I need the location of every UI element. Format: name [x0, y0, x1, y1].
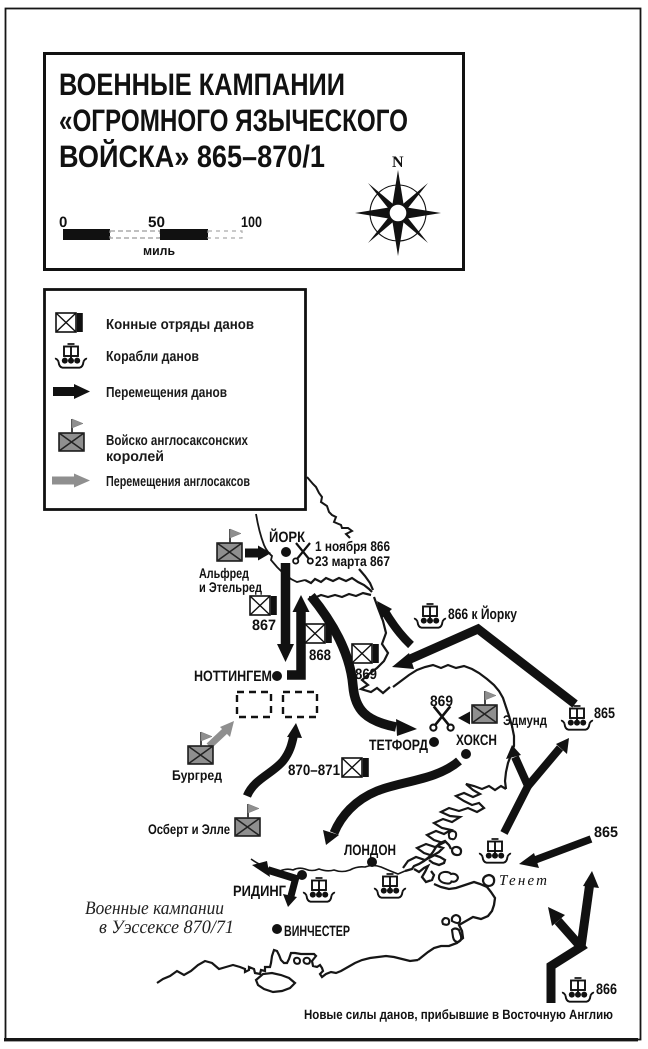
svg-text:865: 865	[594, 705, 615, 722]
svg-text:866 к Йорку: 866 к Йорку	[448, 605, 518, 623]
svg-text:Перемещения англосаксов: Перемещения англосаксов	[106, 474, 250, 490]
svg-text:Корабли данов: Корабли данов	[106, 349, 199, 365]
svg-text:100: 100	[241, 214, 262, 231]
svg-text:ЛОНДОН: ЛОНДОН	[344, 842, 396, 859]
svg-text:Конные отряды данов: Конные отряды данов	[106, 317, 254, 333]
svg-text:в Уэссексе 870/71: в Уэссексе 870/71	[99, 917, 234, 938]
svg-text:Тенет: Тенет	[499, 873, 547, 889]
svg-text:868: 868	[309, 647, 331, 664]
svg-text:королей: королей	[106, 449, 164, 465]
svg-text:Военные кампании: Военные кампании	[85, 898, 224, 919]
svg-text:N: N	[392, 154, 404, 171]
svg-text:Бургред: Бургред	[172, 767, 222, 783]
svg-text:НОТТИНГЕМ: НОТТИНГЕМ	[194, 668, 272, 685]
svg-text:ВОЕННЫЕ КАМПАНИИ: ВОЕННЫЕ КАМПАНИИ	[59, 67, 345, 102]
svg-text:и Этельред: и Этельред	[199, 579, 262, 595]
svg-text:РИДИНГ: РИДИНГ	[233, 883, 286, 900]
svg-text:ВИНЧЕСТЕР: ВИНЧЕСТЕР	[284, 923, 350, 940]
svg-text:Эдмунд: Эдмунд	[503, 712, 547, 728]
svg-text:Новые силы данов, прибывшие в: Новые силы данов, прибывшие в Восточную …	[304, 1007, 613, 1022]
svg-text:Войско англосаксонских: Войско англосаксонских	[106, 433, 248, 449]
svg-text:ЙОРК: ЙОРК	[269, 528, 306, 546]
svg-text:869: 869	[355, 666, 377, 683]
svg-text:Перемещения данов: Перемещения данов	[106, 385, 227, 401]
svg-text:23 марта 867: 23 марта 867	[315, 553, 390, 569]
svg-text:869: 869	[430, 693, 453, 710]
svg-text:867: 867	[252, 617, 276, 634]
svg-text:ТЕТФОРД: ТЕТФОРД	[369, 737, 428, 754]
svg-text:870–871: 870–871	[288, 762, 340, 779]
svg-text:Осберт и Элле: Осберт и Элле	[148, 821, 230, 837]
svg-text:миль: миль	[143, 243, 175, 258]
svg-text:866: 866	[596, 981, 617, 998]
svg-text:50: 50	[148, 214, 165, 231]
svg-text:865: 865	[594, 824, 618, 841]
svg-text:1 ноября 866: 1 ноября 866	[315, 538, 390, 554]
svg-text:0: 0	[59, 214, 67, 231]
svg-text:«ОГРОМНОГО ЯЗЫЧЕСКОГО: «ОГРОМНОГО ЯЗЫЧЕСКОГО	[59, 103, 408, 138]
svg-text:ХОКСН: ХОКСН	[456, 732, 497, 749]
svg-text:ВОЙСКА» 865–870/1: ВОЙСКА» 865–870/1	[59, 138, 325, 174]
